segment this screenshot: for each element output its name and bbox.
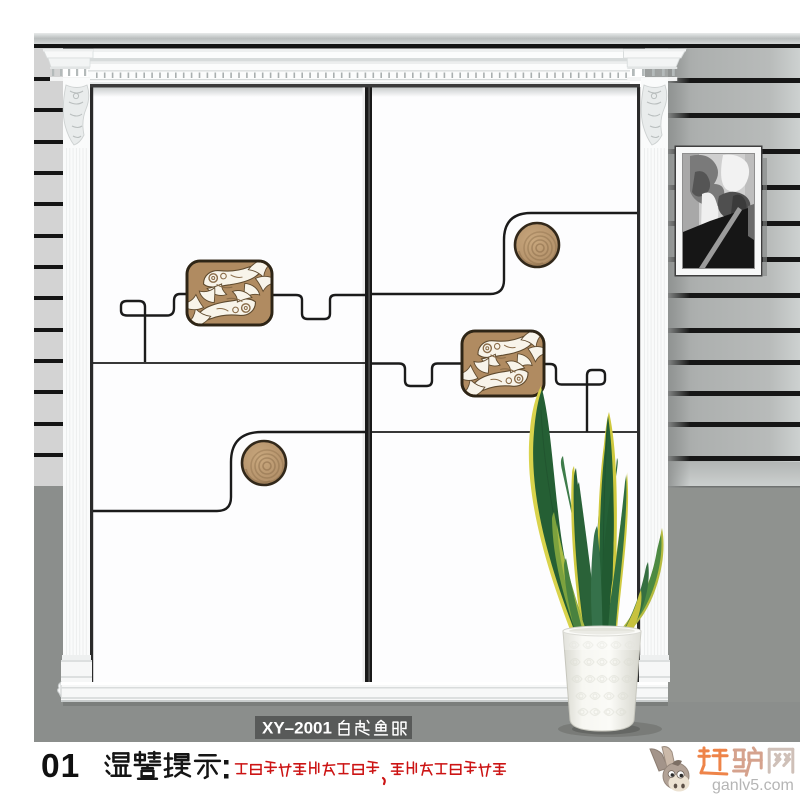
svg-text:ganlv5.com: ganlv5.com	[712, 777, 794, 794]
svg-text:XY–2001: XY–2001	[262, 719, 332, 738]
svg-text:01: 01	[41, 748, 80, 785]
